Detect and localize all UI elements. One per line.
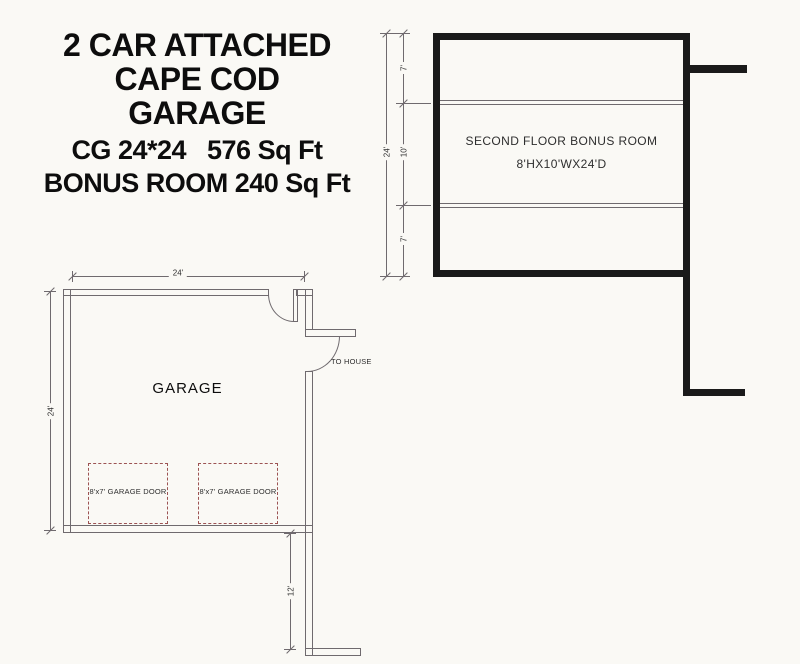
garage-wall-right-upper <box>305 289 313 330</box>
house-door-swing-arc <box>307 336 340 372</box>
to-house-label: TO HOUSE <box>331 357 372 366</box>
garage-depth-dim-label: 24' <box>47 403 56 419</box>
garage-room-name: GARAGE <box>70 380 305 397</box>
garage-wall-right-lower <box>305 371 313 533</box>
title-block: 2 CAR ATTACHED CAPE COD GARAGE CG 24*24 … <box>18 28 376 200</box>
garage-wall-top <box>63 289 269 296</box>
garage-wall-bottom <box>63 525 313 533</box>
bonus-room-right-wall-extension <box>683 277 690 390</box>
bonus-dim-middle-segment-label: 10' <box>400 144 409 160</box>
garage-width-dim-line <box>72 276 305 277</box>
bonus-room-right-wall-stub-bottom <box>683 389 745 396</box>
plan-title-line-3: GARAGE <box>18 96 376 130</box>
garage-wall-left <box>63 289 71 533</box>
bonus-dim-top-segment-label: 7' <box>400 62 409 74</box>
bonus-room-name: SECOND FLOOR BONUS ROOM <box>440 134 683 148</box>
floor-plan-sheet: 2 CAR ATTACHED CAPE COD GARAGE CG 24*24 … <box>0 0 800 664</box>
plan-title-line-2: CAPE COD <box>18 62 376 96</box>
driveway-wall-vertical <box>305 532 313 656</box>
bonus-room-walls <box>433 33 690 277</box>
bonus-room-partition-line-upper <box>440 100 683 105</box>
garage-door-left-label: 8'x7' GARAGE DOOR <box>88 487 168 496</box>
bonus-dim-overall-label: 24' <box>383 144 392 160</box>
garage-width-dim-label: 24' <box>169 269 187 278</box>
bonus-dim-bottom-segment-label: 7' <box>400 233 409 245</box>
plan-spec-bonus-size: BONUS ROOM 240 Sq Ft <box>18 167 376 200</box>
plan-title-line-1: 2 CAR ATTACHED <box>18 28 376 62</box>
bonus-room-dimensions-text: 8'HX10'WX24'D <box>440 157 683 171</box>
driveway-wall-stub <box>305 648 361 656</box>
garage-door-right-label: 8'x7' GARAGE DOOR <box>198 487 278 496</box>
bonus-room-right-wall-stub-top <box>690 65 747 73</box>
entry-door-swing-arc <box>268 294 294 322</box>
driveway-dim-label: 12' <box>287 583 296 599</box>
plan-spec-garage-size: CG 24*24 576 Sq Ft <box>18 134 376 167</box>
bonus-room-partition-line-lower <box>440 203 683 208</box>
